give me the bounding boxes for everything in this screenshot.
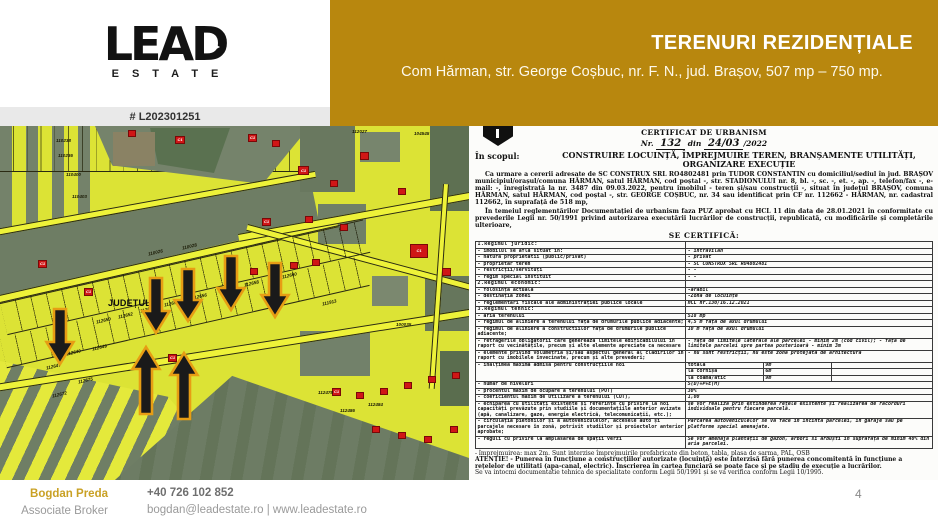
lead-estate-logo: LEAD ESTATE bbox=[0, 22, 330, 80]
logo-arrow-icon bbox=[209, 41, 220, 53]
slide: LEAD ESTATE # L202301251 TERENURI REZIDE… bbox=[0, 0, 938, 527]
listing-reference-text: # L202301251 bbox=[130, 111, 201, 123]
certificate-paragraph-1: Ca urmare a cererii adresate de SC CONST… bbox=[475, 171, 933, 206]
footnote: Se va intocmi documentatie tehnica de sp… bbox=[475, 470, 933, 477]
agent-phone: +40 726 102 852 bbox=[147, 487, 234, 499]
certificate-table-row: - elemente privind volumetria și/sau asp… bbox=[476, 350, 933, 362]
table-cell-label: - înălțimea maximă admisă pentru constru… bbox=[476, 362, 686, 382]
certificate-table-row: - retragerile obligatorii care generează… bbox=[476, 338, 933, 350]
listing-reference: # L202301251 bbox=[0, 107, 330, 126]
page-title: TERENURI REZIDENȚIALE bbox=[651, 32, 913, 55]
title-band: TERENURI REZIDENȚIALE Com Hărman, str. G… bbox=[330, 0, 938, 126]
page-subtitle: Com Hărman, str. George Coșbuc, nr. F. N… bbox=[358, 64, 926, 80]
date-handwritten: 24/03 bbox=[704, 138, 743, 150]
cadastral-map: C1 C1 C1 C1 C1 C1 C1 C1 C1 110238 110236 bbox=[0, 126, 469, 480]
table-cell-value: Se vor amenaja plantații de gazon, arbor… bbox=[686, 436, 933, 448]
year-text: /2022 bbox=[743, 139, 767, 148]
plot-arrow-up-icon bbox=[171, 353, 198, 419]
plot-arrow-down-icon bbox=[262, 263, 289, 317]
table-cell-value: se vor realiza prin extinderea rețele ex… bbox=[686, 401, 933, 419]
table-cell-label: - retragerile obligatorii care generează… bbox=[476, 338, 686, 350]
brand-wordmark: LEAD bbox=[104, 22, 227, 66]
logo-area: LEAD ESTATE bbox=[0, 0, 330, 107]
plot-arrow-up-icon bbox=[133, 347, 160, 414]
certificate-table-row: - reguli cu privire la amplasarea de spa… bbox=[476, 436, 933, 448]
certify-heading: SE CERTIFICĂ: bbox=[475, 231, 933, 240]
din-label: din bbox=[688, 139, 702, 148]
plot-arrows-overlay bbox=[0, 126, 469, 480]
table-cell-value: 10 m față de axul drumului bbox=[686, 326, 933, 338]
table-cell-label: - elemente privind volumetria și/sau asp… bbox=[476, 350, 686, 362]
agent-name: Bogdan Preda bbox=[10, 488, 108, 500]
plot-arrow-down-icon bbox=[143, 278, 170, 333]
certificate-table-row: - echiparea cu utilități existente și re… bbox=[476, 401, 933, 419]
plot-arrow-down-icon bbox=[47, 309, 74, 364]
purpose-row: În scopul: CONSTRUIRE LOCUINȚĂ, ÎMPREJMU… bbox=[475, 151, 933, 169]
brand-text: LEAD bbox=[104, 17, 227, 71]
certificate-table-row: - regimul de aliniere a constructiilor f… bbox=[476, 326, 933, 338]
agent-role: Associate Broker bbox=[10, 505, 108, 517]
table-cell-value: - față de limitele laterale ale parcelei… bbox=[686, 338, 933, 350]
certificate-number-line: Nr. 132 din 24/03/2022 bbox=[475, 138, 933, 149]
footer: Bogdan Preda Associate Broker +40 726 10… bbox=[0, 480, 938, 527]
table-cell-label: - reguli cu privire la amplasarea de spa… bbox=[476, 436, 686, 448]
certificate-paragraph-2: În temeiul reglementărilor Documentației… bbox=[475, 208, 933, 229]
plot-arrow-down-icon bbox=[218, 256, 245, 310]
table-cell-value: - nu sunt restricții, nu este zona prote… bbox=[686, 350, 933, 362]
purpose-text: CONSTRUIRE LOCUINȚĂ, ÎMPREJMUIRE TEREN, … bbox=[545, 151, 933, 169]
table-cell-label: - echiparea cu utilități existente și re… bbox=[476, 401, 686, 419]
purpose-label: În scopul: bbox=[475, 151, 545, 169]
plot-arrow-down-icon bbox=[175, 269, 202, 321]
page-number: 4 bbox=[855, 487, 862, 501]
certificate-table: 1.Regimul juridic:- imobilul se află sit… bbox=[475, 241, 933, 449]
nr-handwritten: 132 bbox=[656, 138, 685, 150]
certificate-title: CERTIFICAT DE URBANISM bbox=[475, 128, 933, 137]
certificate-table-row: - circulația pietonilor și a autovehicul… bbox=[476, 419, 933, 437]
agent-email-website: bogdan@leadestate.ro | www.leadestate.ro bbox=[147, 504, 367, 516]
table-cell-label: - regimul de aliniere a terenului față d… bbox=[476, 320, 686, 327]
table-cell-label: - regimul de aliniere a constructiilor f… bbox=[476, 326, 686, 338]
certificate-footnotes: - împrejmuirea: max 2m. Sunt interzise î… bbox=[475, 451, 933, 477]
table-cell-value: Parcarea autovehiculelor se va face în i… bbox=[686, 419, 933, 437]
nr-prefix: Nr. bbox=[641, 139, 654, 148]
urbanism-certificate: CERTIFICAT DE URBANISM Nr. 132 din 24/03… bbox=[469, 126, 938, 492]
table-cell-label: - circulația pietonilor și a autovehicul… bbox=[476, 419, 686, 437]
